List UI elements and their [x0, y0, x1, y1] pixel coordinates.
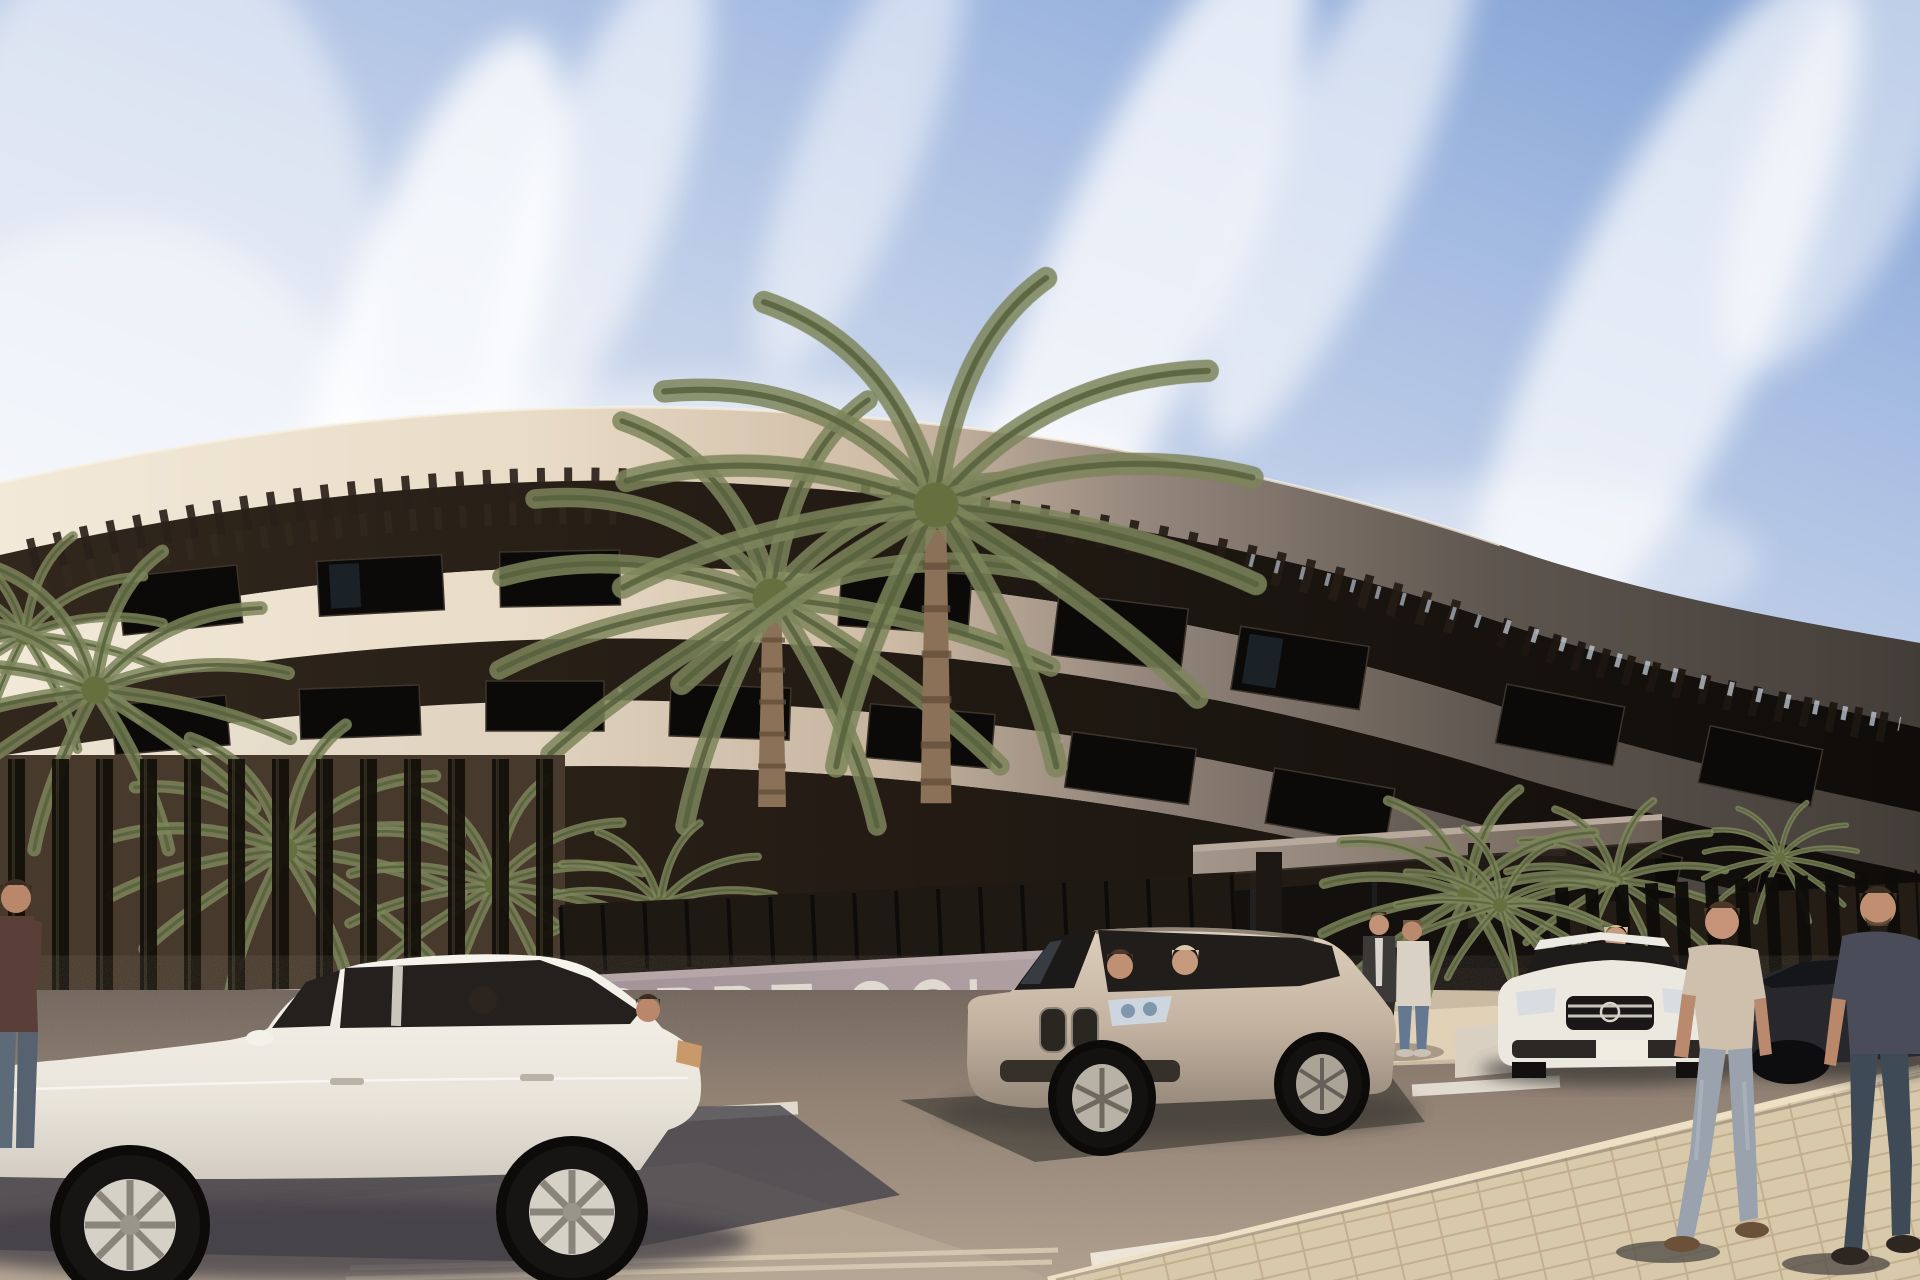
sedan-driver [469, 986, 497, 1014]
suv-rear-wheel [1274, 1032, 1370, 1136]
canopy-column [1256, 852, 1282, 940]
suv-kidney-grille [1040, 1008, 1066, 1052]
sedan-mirror [246, 1030, 274, 1046]
suv-driver [1107, 953, 1133, 979]
mercedes-grille [1566, 996, 1654, 1030]
suv-side-glass [1098, 930, 1340, 992]
architectural-render: TORRE GOL [0, 0, 1920, 1280]
sedan-rear-passenger [636, 998, 660, 1022]
render-canvas: TORRE GOL [0, 0, 1920, 1280]
suv-front-wheel [1048, 1040, 1156, 1156]
mercedes-headlight-left [1516, 988, 1556, 1016]
suv-headlight [1108, 996, 1172, 1026]
suv-passenger [1172, 949, 1198, 975]
